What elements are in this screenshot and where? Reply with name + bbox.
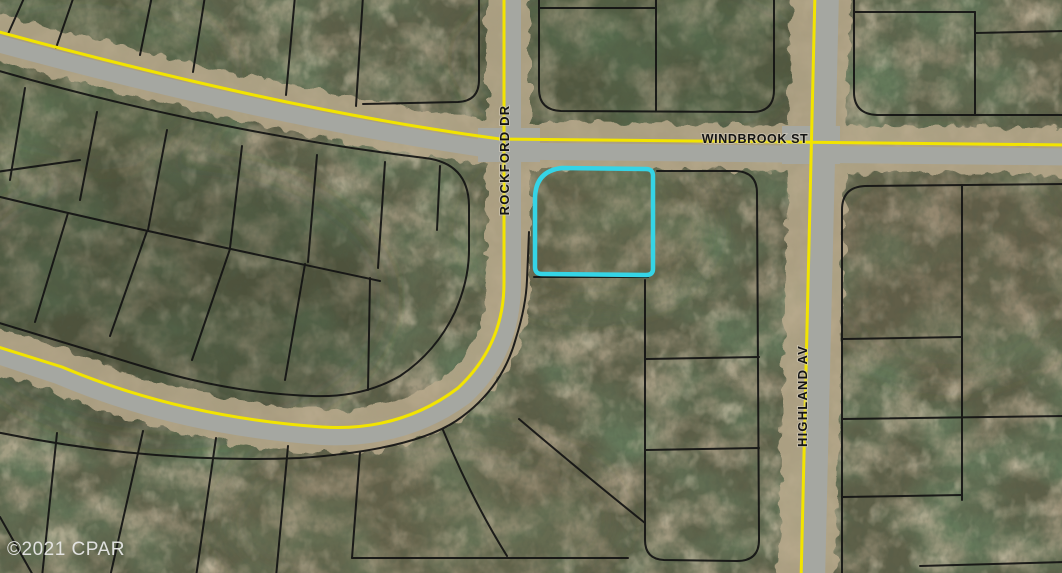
aerial-map-canvas: ROCKFORD DR WINDBROOK ST HIGHLAND AV ©20… (0, 0, 1062, 573)
aerial-map: ROCKFORD DR WINDBROOK ST HIGHLAND AV ©20… (0, 0, 1062, 573)
copyright-watermark: ©2021 CPAR (7, 539, 125, 560)
street-label-rockford: ROCKFORD DR (497, 105, 512, 216)
street-label-windbrook: WINDBROOK ST (702, 132, 809, 146)
street-label-highland: HIGHLAND AV (795, 345, 810, 447)
